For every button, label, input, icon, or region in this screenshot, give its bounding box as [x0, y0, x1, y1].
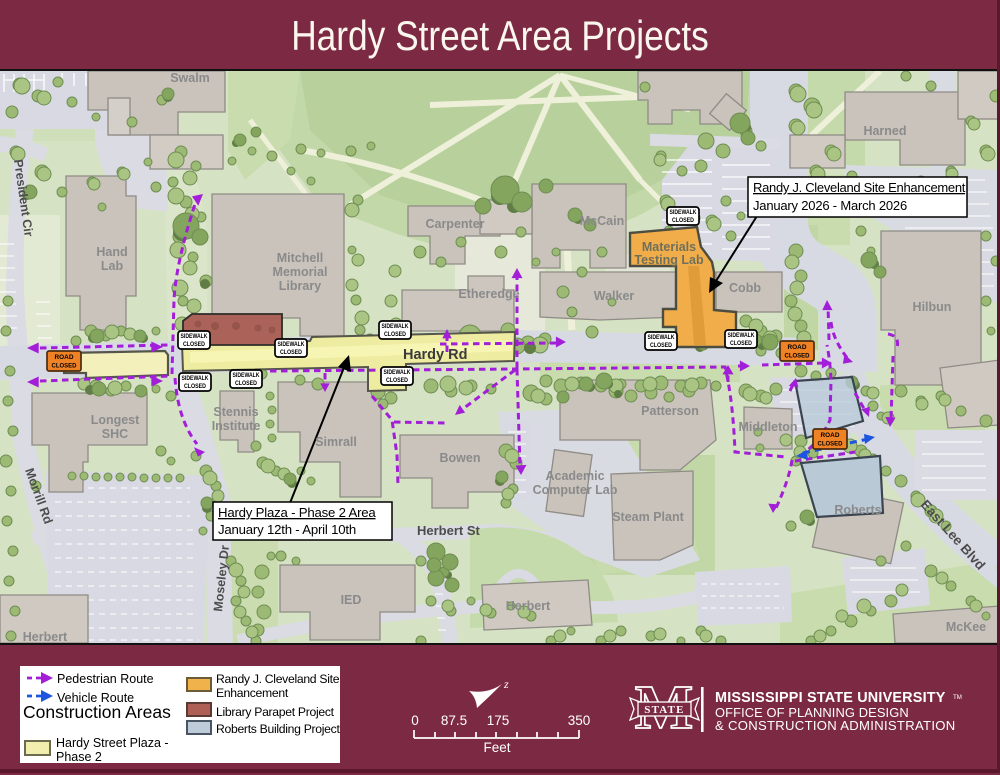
svg-text:175: 175: [487, 713, 510, 728]
svg-text:Stennis: Stennis: [213, 405, 258, 419]
svg-text:Phase 2: Phase 2: [56, 750, 102, 764]
svg-text:TM: TM: [953, 694, 962, 701]
svg-text:Longest: Longest: [91, 413, 140, 427]
svg-text:0: 0: [411, 713, 419, 728]
svg-text:January 2026 - March 2026: January 2026 - March 2026: [753, 198, 907, 213]
svg-text:Hardy Rd: Hardy Rd: [403, 347, 467, 363]
svg-text:z: z: [503, 677, 509, 691]
svg-text:Hilbun: Hilbun: [913, 300, 952, 314]
svg-text:IED: IED: [341, 593, 362, 607]
svg-text:Materials: Materials: [642, 240, 696, 254]
svg-text:Roberts: Roberts: [834, 503, 881, 517]
svg-text:Walker: Walker: [594, 289, 635, 303]
svg-text:87.5: 87.5: [441, 713, 467, 728]
svg-text:Testing Lab: Testing Lab: [634, 253, 704, 267]
svg-text:Enhancement: Enhancement: [216, 686, 289, 700]
svg-text:McKee: McKee: [946, 620, 986, 634]
svg-text:Herbert: Herbert: [506, 599, 551, 613]
svg-text:Swalm: Swalm: [170, 71, 210, 85]
svg-text:McCain: McCain: [580, 214, 624, 228]
svg-text:Mitchell: Mitchell: [277, 251, 324, 265]
svg-text:Harned: Harned: [863, 124, 906, 138]
svg-text:Memorial: Memorial: [273, 265, 328, 279]
svg-text:Academic: Academic: [545, 469, 604, 483]
svg-text:Institute: Institute: [212, 419, 261, 433]
svg-text:Hardy Street Plaza -: Hardy Street Plaza -: [56, 736, 169, 750]
svg-text:Construction Areas: Construction Areas: [23, 702, 171, 722]
svg-text:Middleton: Middleton: [738, 420, 797, 434]
svg-text:350: 350: [568, 713, 591, 728]
svg-text:Patterson: Patterson: [641, 404, 699, 418]
svg-text:Herbert St: Herbert St: [417, 523, 481, 538]
svg-text:MISSISSIPPI STATE UNIVERSITY: MISSISSIPPI STATE UNIVERSITY: [715, 690, 946, 706]
svg-text:Steam Plant: Steam Plant: [612, 510, 684, 524]
svg-text:January 12th - April 10th: January 12th - April 10th: [218, 522, 356, 537]
svg-text:Carpenter: Carpenter: [425, 217, 484, 231]
svg-text:Roberts Building Project: Roberts Building Project: [216, 722, 340, 736]
svg-text:Etheredge: Etheredge: [458, 287, 519, 301]
svg-text:Lab: Lab: [101, 259, 124, 273]
svg-text:Library Parapet Project: Library Parapet Project: [216, 705, 335, 719]
svg-text:Cobb: Cobb: [729, 281, 761, 295]
svg-text:Library: Library: [279, 279, 321, 293]
svg-text:Bowen: Bowen: [440, 451, 481, 465]
svg-text:Hardy Plaza - Phase 2 Area: Hardy Plaza - Phase 2 Area: [218, 505, 376, 520]
svg-text:& CONSTRUCTION ADMINISTRATION: & CONSTRUCTION ADMINISTRATION: [715, 718, 956, 733]
svg-text:Randy J. Cleveland Site Enhanc: Randy J. Cleveland Site Enhancement: [753, 180, 966, 195]
svg-text:Simrall: Simrall: [315, 435, 357, 449]
svg-text:Randy J. Cleveland Site: Randy J. Cleveland Site: [216, 672, 340, 686]
svg-text:STATE: STATE: [644, 704, 684, 716]
svg-text:Computer Lab: Computer Lab: [533, 483, 618, 497]
svg-text:Hand: Hand: [96, 245, 127, 259]
svg-text:Feet: Feet: [483, 740, 510, 755]
svg-text:Herbert: Herbert: [23, 630, 68, 643]
svg-text:SHC: SHC: [102, 427, 128, 441]
svg-text:Pedestrian Route: Pedestrian Route: [57, 672, 154, 686]
